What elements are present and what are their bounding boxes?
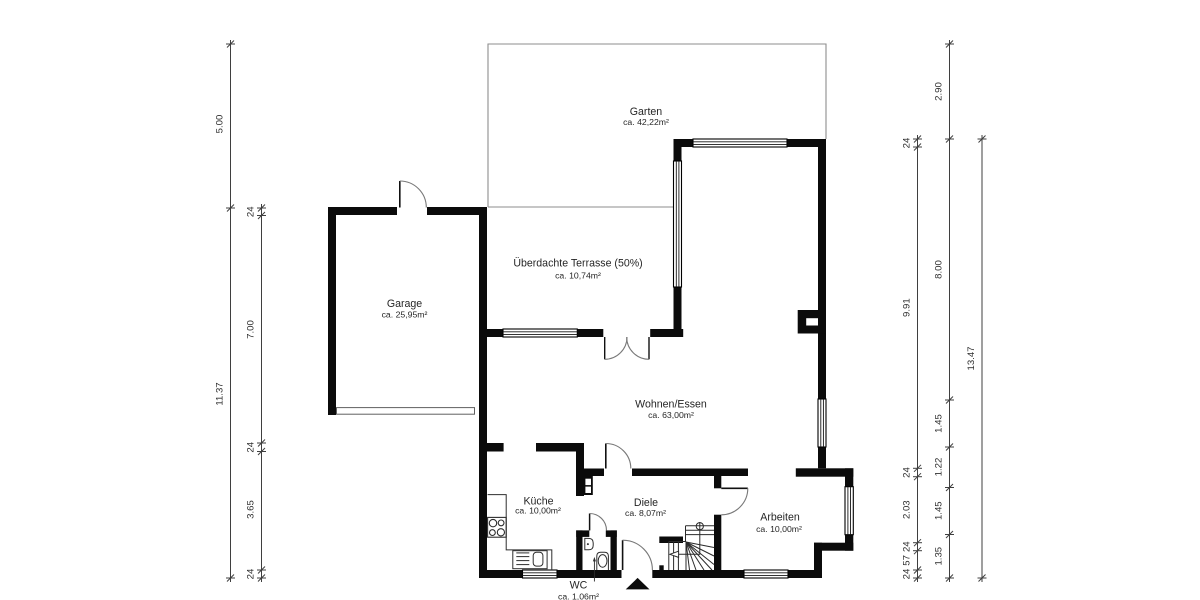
svg-text:ca. 63,00m²: ca. 63,00m² <box>648 410 694 420</box>
svg-text:9.91: 9.91 <box>902 298 913 317</box>
svg-text:24: 24 <box>246 441 257 452</box>
svg-text:Überdachte Terrasse (50%): Überdachte Terrasse (50%) <box>513 258 642 270</box>
svg-text:1.45: 1.45 <box>934 501 945 520</box>
svg-text:24: 24 <box>902 137 913 148</box>
svg-text:1.45: 1.45 <box>934 414 945 433</box>
svg-text:3.65: 3.65 <box>246 500 257 519</box>
svg-text:8.00: 8.00 <box>934 260 945 279</box>
svg-text:WC: WC <box>570 580 588 592</box>
svg-text:ca. 8,07m²: ca. 8,07m² <box>625 508 666 518</box>
svg-text:Wohnen/Essen: Wohnen/Essen <box>635 398 707 410</box>
svg-text:13.47: 13.47 <box>966 346 977 370</box>
svg-text:2.90: 2.90 <box>934 82 945 101</box>
svg-text:ca. 1,06m²: ca. 1,06m² <box>558 592 599 600</box>
svg-text:Arbeiten: Arbeiten <box>760 512 800 524</box>
svg-text:ca. 25,95m²: ca. 25,95m² <box>382 309 428 319</box>
svg-text:24: 24 <box>902 568 913 579</box>
svg-text:2.03: 2.03 <box>902 500 913 519</box>
svg-text:1.35: 1.35 <box>934 547 945 566</box>
svg-text:24: 24 <box>902 541 913 552</box>
svg-text:Garage: Garage <box>387 298 422 310</box>
svg-text:ca. 10,74m²: ca. 10,74m² <box>555 270 601 280</box>
svg-text:ca. 42,22m²: ca. 42,22m² <box>623 117 669 127</box>
svg-text:24: 24 <box>246 206 257 217</box>
svg-text:57: 57 <box>902 555 913 566</box>
svg-text:24: 24 <box>246 568 257 579</box>
svg-text:ca. 10,00m²: ca. 10,00m² <box>756 524 802 534</box>
svg-text:ca. 10,00m²: ca. 10,00m² <box>515 506 561 516</box>
svg-text:7.00: 7.00 <box>246 320 257 339</box>
svg-text:11.37: 11.37 <box>215 382 226 405</box>
svg-text:24: 24 <box>902 467 913 478</box>
svg-text:5.00: 5.00 <box>215 115 226 134</box>
svg-text:1.22: 1.22 <box>934 458 945 477</box>
